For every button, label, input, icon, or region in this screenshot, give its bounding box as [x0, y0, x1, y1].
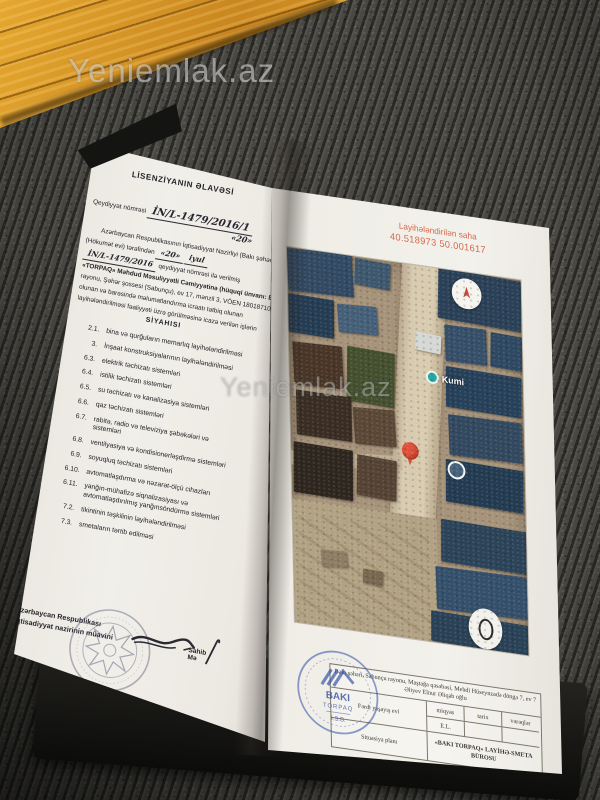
- registration-number-handwritten: İN/L-1479/2016/1: [146, 205, 254, 236]
- field-tracks: [299, 513, 432, 633]
- licensed-works-list: 2.1.bina və qurğuların memarlıq layihələ…: [49, 323, 251, 561]
- list-item-number: 6.4.: [71, 367, 101, 381]
- roof-logo-icon: [322, 668, 354, 689]
- list-item-number: 6.7.: [63, 411, 94, 433]
- list-item-number: 6.10.: [57, 463, 87, 477]
- marker-glyph: [478, 617, 493, 640]
- list-item-number: 6.3.: [73, 352, 103, 366]
- map-building: [354, 258, 390, 291]
- list-item-number: 7.2.: [52, 501, 82, 515]
- list-item-number: 6.9.: [59, 448, 89, 462]
- map-building: [287, 248, 354, 298]
- list-item-number: 7.3.: [50, 516, 80, 530]
- satellite-map-image: Kumi: [287, 247, 528, 656]
- map-place-label: Kumi: [426, 370, 464, 389]
- map-building: [288, 293, 334, 339]
- map-shed: [320, 550, 347, 568]
- list-item-number: 2.1.: [77, 323, 107, 337]
- map-white-roof: [415, 331, 442, 355]
- company-stamp-icon: BAKI TORPAQ İ.S.B.: [295, 644, 380, 741]
- compass-north-icon: [451, 277, 481, 312]
- stamp-text-isb: İ.S.B.: [331, 715, 346, 724]
- site-coordinates-label: Layihələndirilən saha 40.518973 50.00161…: [363, 215, 512, 259]
- map-side-road: [287, 450, 403, 471]
- map-shed: [363, 568, 383, 586]
- map-open-field: [292, 498, 439, 642]
- map-building: [441, 519, 526, 575]
- map-building: [444, 324, 487, 366]
- map-building: [431, 610, 528, 655]
- map-building: [446, 459, 523, 514]
- registration-label: Qeydiyyat nömrəsi: [93, 199, 147, 215]
- map-building: [435, 566, 528, 620]
- list-item-number: 3.: [75, 337, 105, 351]
- map-building: [438, 267, 522, 332]
- map-marker-circle-icon: [468, 606, 503, 651]
- map-building: [446, 366, 521, 419]
- list-item-number: 6.11.: [54, 478, 85, 500]
- site-plan-page: Layihələndirilən saha 40.518973 50.00161…: [250, 180, 590, 800]
- map-road: [383, 250, 448, 655]
- map-building: [292, 341, 344, 389]
- map-building: [490, 332, 522, 372]
- location-pin-icon: [402, 441, 419, 468]
- map-building: [337, 304, 379, 336]
- list-item-number: 6.8.: [61, 434, 91, 448]
- map-building: [294, 441, 354, 501]
- list-item-number: 6.6.: [67, 396, 97, 410]
- map-building: [353, 407, 397, 447]
- location-pin-head: [402, 441, 419, 461]
- street-view-ring-icon: [447, 460, 465, 481]
- place-pin-icon: [426, 370, 439, 385]
- place-name: Kumi: [442, 374, 464, 387]
- map-building: [448, 414, 523, 464]
- list-item-number: 6.5.: [69, 381, 99, 395]
- stamp-text-baki: BAKI: [326, 690, 351, 705]
- map-garden: [347, 346, 395, 409]
- map-building: [357, 454, 397, 501]
- body-text: Azərbaycan Respublikasının İqtisadiyyat …: [77, 223, 285, 338]
- location-pin-tail: [407, 456, 413, 466]
- map-building: [296, 389, 352, 442]
- photo-scene: LİSENZİYANIN ƏLAVƏSİ Qeydiyyat nömrəsi İ…: [0, 0, 600, 800]
